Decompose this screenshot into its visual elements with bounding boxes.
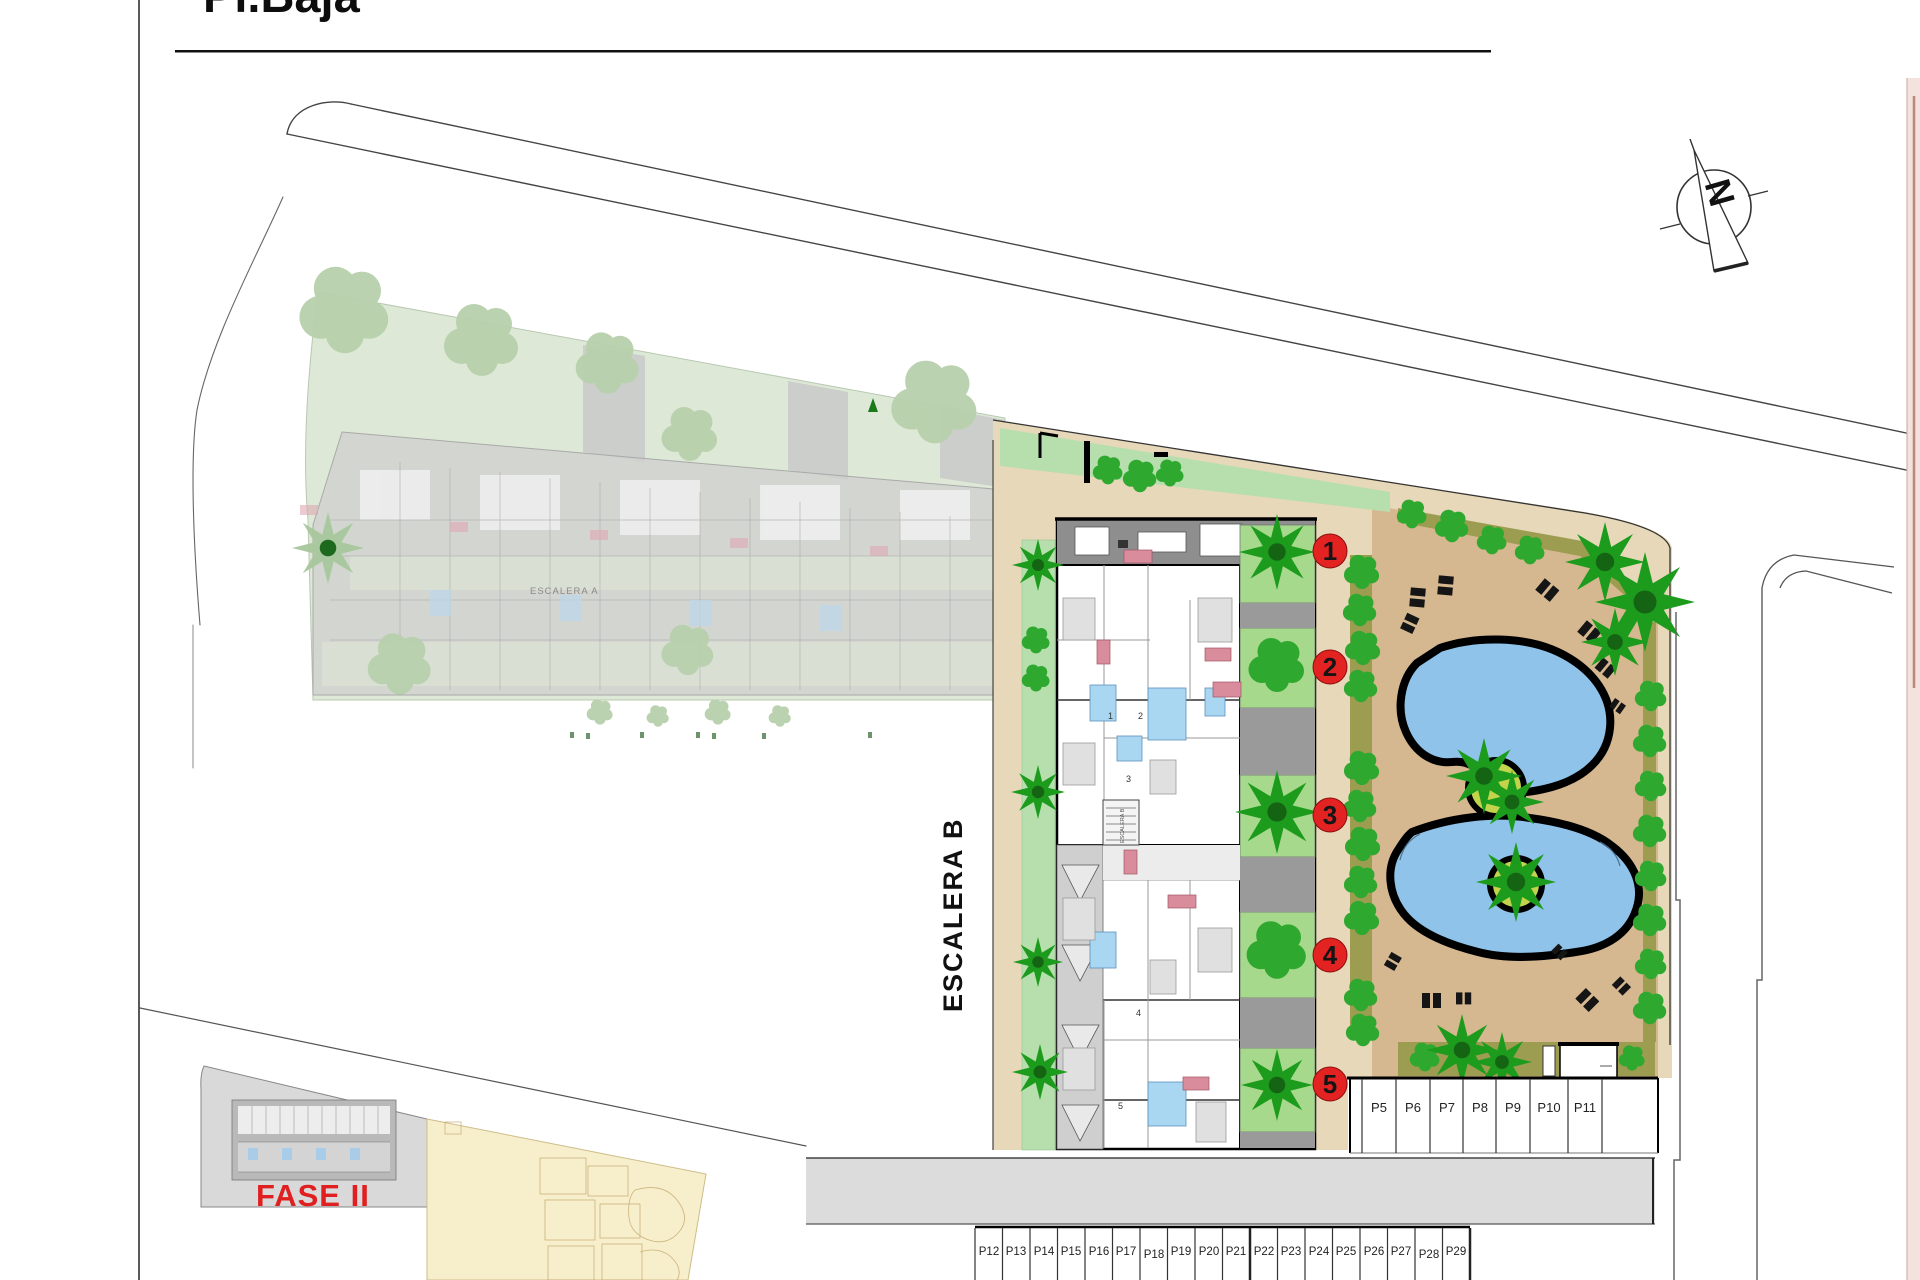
parking-stall-label: P6 (1405, 1100, 1421, 1115)
unit-marker-5: 5 (1313, 1067, 1347, 1101)
parking-stall-label: P19 (1171, 1246, 1191, 1258)
stairwell-label: ESCALERA B (1120, 808, 1126, 843)
escalera-b-label: ESCALERA B (938, 817, 968, 1012)
parking-stall-label: P29 (1446, 1246, 1466, 1258)
shrub-icon (587, 699, 613, 724)
parking-stall-label: P21 (1226, 1246, 1246, 1258)
unit-marker-number: 3 (1323, 800, 1337, 830)
palm-tree-icon (1013, 937, 1063, 987)
fase3-plot (427, 1119, 706, 1280)
palm-tree-icon (1239, 514, 1315, 590)
fase2-mini-building (232, 1100, 396, 1180)
unit-marker-1: 1 (1313, 534, 1347, 568)
parking-stall-label: P9 (1505, 1100, 1521, 1115)
svg-text:1: 1 (1108, 711, 1113, 721)
fase3-plot-ground (427, 1119, 706, 1280)
parking-row-bottom: P12 P13 P14 P15 P16 P17 P18 P19 P20 P21 … (975, 1227, 1470, 1280)
parking-stall-label: P10 (1537, 1100, 1560, 1115)
title-block: Pl.Baja (175, 0, 1491, 53)
west-property-curve (193, 197, 283, 625)
parking-stall-label: P25 (1336, 1246, 1356, 1258)
parking-stall-label: P12 (979, 1246, 999, 1258)
svg-text:2: 2 (1138, 711, 1143, 721)
unit-marker-number: 4 (1323, 940, 1338, 970)
unit-marker-number: 5 (1323, 1069, 1337, 1099)
palm-tree-icon (1476, 842, 1556, 922)
unit-marker-number: 1 (1323, 536, 1337, 566)
svg-text:4: 4 (1136, 1008, 1141, 1018)
corridor (1103, 845, 1240, 880)
upper-road-end-hook (287, 102, 351, 134)
unit-marker-number: 2 (1323, 652, 1337, 682)
faded-phase-site: ESCALERA A (292, 267, 1084, 739)
parking-stall-label: P28 (1419, 1249, 1439, 1261)
unit-marker-2: 2 (1313, 650, 1347, 684)
parking-stall-label: P14 (1034, 1246, 1055, 1258)
fase2-label: FASE II (256, 1178, 370, 1213)
parking-stall-label: P11 (1574, 1100, 1596, 1115)
street-line-inner (1674, 612, 1680, 1280)
site-plan-page: Pl.Baja (0, 0, 1920, 1280)
parking-stall-label: P20 (1199, 1246, 1219, 1258)
parking-stall-label: P27 (1391, 1246, 1411, 1258)
site-plan-canvas: Pl.Baja (0, 0, 1920, 1280)
north-compass: N (1660, 139, 1768, 271)
parking-stall-label: P23 (1281, 1246, 1301, 1258)
pool-house (1543, 1044, 1619, 1078)
shrub-icon (769, 705, 791, 727)
parking-stall-label: P22 (1254, 1246, 1274, 1258)
parking-stall-label: P26 (1364, 1246, 1384, 1258)
parking-row-top: P5 P6 P7 P8 P9 P10 P11 (1347, 1078, 1658, 1153)
access-road (806, 1158, 1655, 1224)
svg-text:3: 3 (1126, 774, 1131, 784)
street-line-outer (1757, 588, 1762, 1280)
escalera-b-building: ESCALERA B (1055, 514, 1319, 1149)
parking-stall-label: P17 (1116, 1246, 1136, 1258)
escalera-a-label: ESCALERA A (530, 586, 599, 597)
palm-tree-icon (1241, 1049, 1313, 1121)
street-corner-curves (1762, 555, 1894, 593)
title-underline (175, 50, 1491, 53)
palm-tree-icon (1012, 1044, 1068, 1100)
right-street (1674, 78, 1920, 1280)
parking-stall-label: P15 (1061, 1246, 1081, 1258)
page-title: Pl.Baja (203, 0, 361, 22)
parking-stall-label: P24 (1309, 1246, 1330, 1258)
svg-text:5: 5 (1118, 1101, 1123, 1111)
shrub-icon (705, 699, 731, 724)
parking-stall-label: P18 (1144, 1249, 1164, 1261)
parking-stall-label: P8 (1472, 1100, 1488, 1115)
unit-marker-4: 4 (1313, 938, 1347, 972)
parking-stall-label: P7 (1439, 1100, 1455, 1115)
parking-stall-label: P16 (1089, 1246, 1109, 1258)
unit-marker-3: 3 (1313, 798, 1347, 832)
parking-stall-label: P13 (1006, 1246, 1026, 1258)
shrub-icon (647, 705, 669, 727)
parking-stall-label: P5 (1371, 1100, 1387, 1115)
fase2-plot: FASE II (201, 1066, 427, 1213)
